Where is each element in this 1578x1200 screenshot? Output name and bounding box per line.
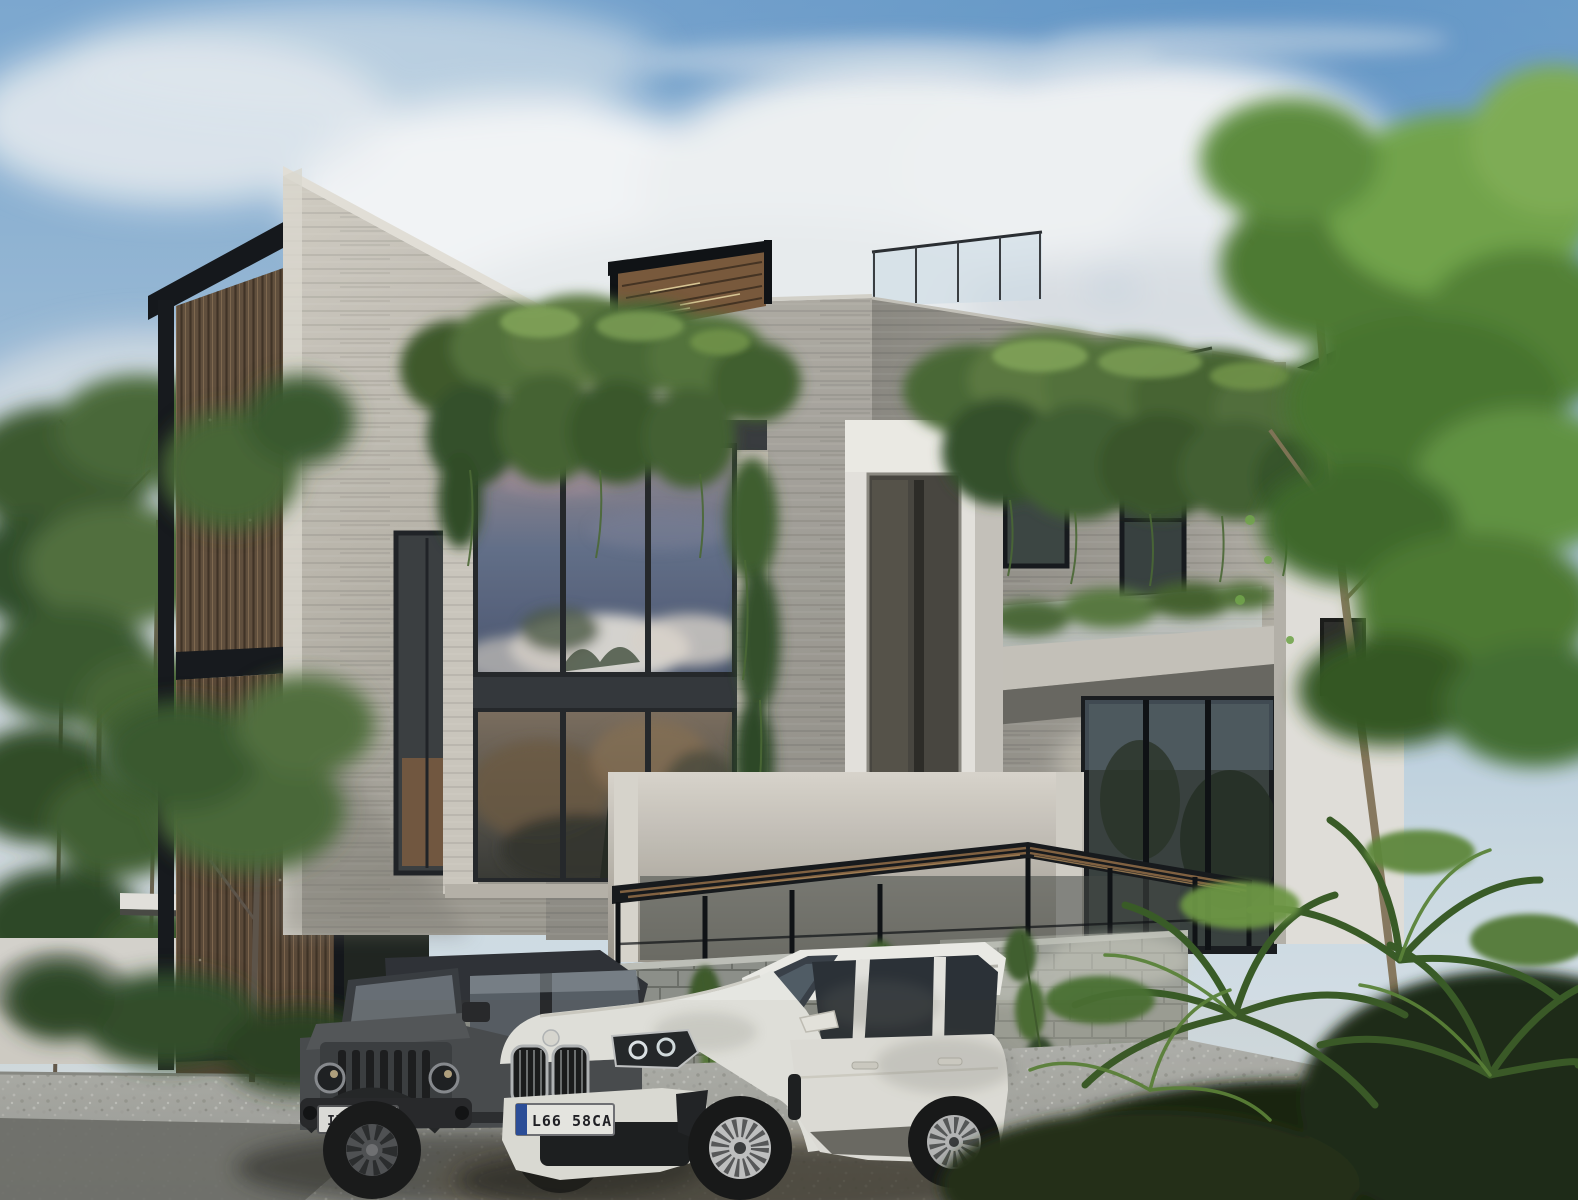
rendering-canvas: IXH5 L6 L66 58C bbox=[0, 0, 1578, 1200]
warm-grade-overlay bbox=[0, 1000, 1578, 1200]
